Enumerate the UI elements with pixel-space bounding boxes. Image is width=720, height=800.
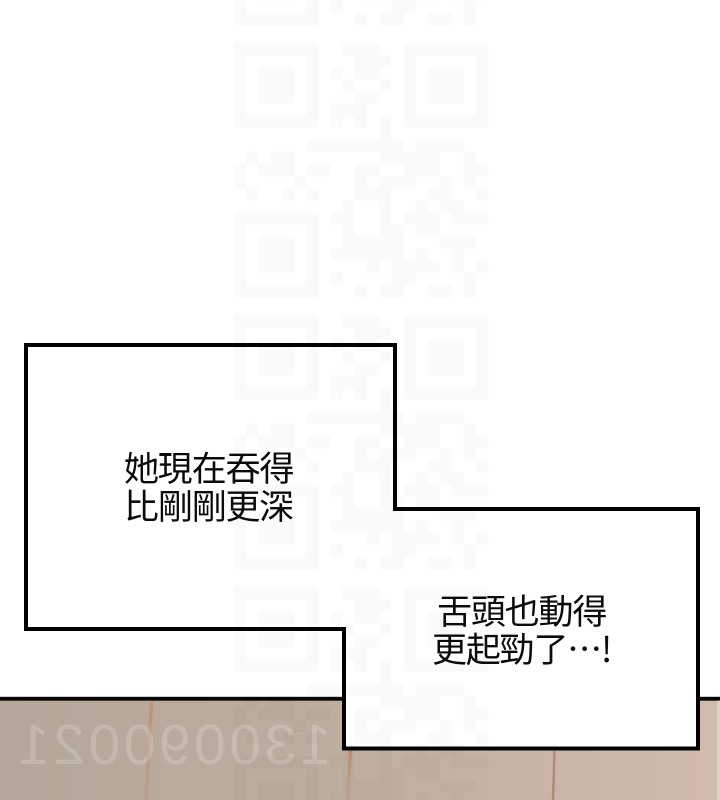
svg-text:130090021: 130090021 bbox=[15, 713, 332, 777]
